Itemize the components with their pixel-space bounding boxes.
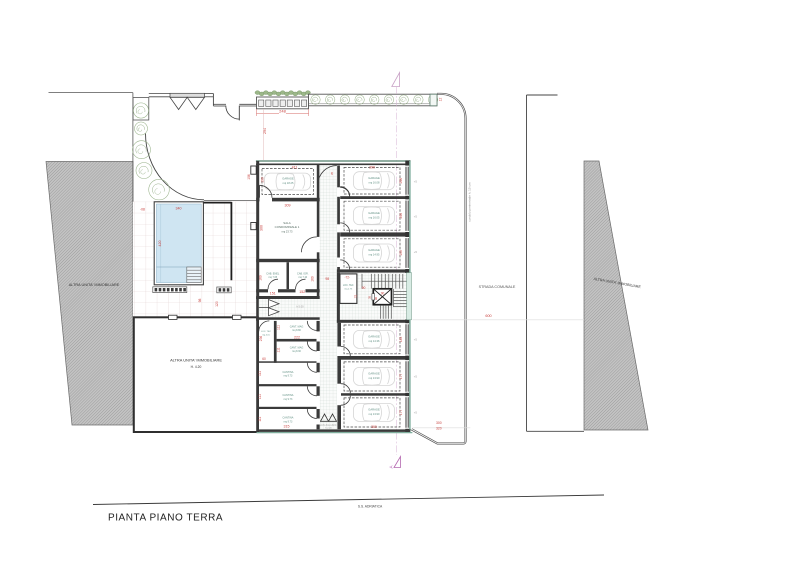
svg-text:mq 18.25: mq 18.25 xyxy=(283,181,294,185)
svg-text:151: 151 xyxy=(270,292,276,296)
svg-text:mq 14.95: mq 14.95 xyxy=(369,253,380,257)
svg-text:h 5.00: h 5.00 xyxy=(296,305,304,309)
svg-text:mq 2.73: mq 2.73 xyxy=(344,288,353,290)
svg-text:STRADA COMUNALE: STRADA COMUNALE xyxy=(479,285,516,289)
svg-text:106: 106 xyxy=(247,174,251,180)
svg-text:mq 9.73: mq 9.73 xyxy=(284,420,293,423)
svg-text:LOC. TEC: LOC. TEC xyxy=(343,285,354,287)
svg-text:GARAGE: GARAGE xyxy=(368,176,380,180)
svg-text:190: 190 xyxy=(399,250,403,256)
svg-text:GARAGE: GARAGE xyxy=(368,408,380,412)
svg-text:177: 177 xyxy=(399,410,403,416)
svg-text:-08: -08 xyxy=(140,208,145,212)
svg-text:mq 8.80: mq 8.80 xyxy=(292,329,301,332)
svg-text:mq 9.73: mq 9.73 xyxy=(284,398,293,401)
svg-text:152: 152 xyxy=(299,290,305,294)
svg-text:206: 206 xyxy=(399,213,403,219)
svg-text:206: 206 xyxy=(399,178,403,184)
svg-text:183: 183 xyxy=(399,336,403,342)
svg-text:177: 177 xyxy=(399,374,403,380)
svg-text:35: 35 xyxy=(367,296,371,300)
svg-text:mq 7.05: mq 7.05 xyxy=(268,276,277,279)
svg-text:CAB. ENEL: CAB. ENEL xyxy=(266,273,280,276)
svg-text:360: 360 xyxy=(371,425,377,429)
svg-text:GARAGE: GARAGE xyxy=(282,177,294,181)
svg-text:90: 90 xyxy=(362,286,366,290)
svg-text:98: 98 xyxy=(325,277,329,281)
svg-text:300: 300 xyxy=(260,225,264,231)
svg-text:CAB. IDR.: CAB. IDR. xyxy=(297,273,309,276)
svg-text:111: 111 xyxy=(258,416,262,421)
svg-text:ALTRA UNITA' IMMOBILIARE: ALTRA UNITA' IMMOBILIARE xyxy=(170,358,222,363)
svg-text:90: 90 xyxy=(381,292,385,296)
svg-text:mq 16.05: mq 16.05 xyxy=(369,215,380,219)
svg-text:mq 14.36: mq 14.36 xyxy=(369,339,380,343)
svg-text:111: 111 xyxy=(258,394,262,399)
svg-text:CANT. MAG: CANT. MAG xyxy=(290,326,304,329)
svg-text:111: 111 xyxy=(277,347,281,352)
svg-text:300: 300 xyxy=(436,421,442,425)
svg-text:PIANTA PIANO TERRA: PIANTA PIANO TERRA xyxy=(108,513,223,524)
svg-text:309: 309 xyxy=(285,204,291,208)
svg-text:GARAGE: GARAGE xyxy=(368,248,380,252)
svg-text:A: A xyxy=(389,465,394,469)
svg-text:111: 111 xyxy=(258,371,262,376)
svg-text:248: 248 xyxy=(279,109,286,114)
svg-text:98: 98 xyxy=(198,299,202,303)
svg-text:60: 60 xyxy=(262,357,266,361)
svg-text:169: 169 xyxy=(259,275,263,281)
svg-text:340: 340 xyxy=(176,206,182,210)
svg-text:mq 13.90: mq 13.90 xyxy=(369,412,380,416)
svg-text:h 2.20: h 2.20 xyxy=(325,427,332,429)
svg-text:CANTINA: CANTINA xyxy=(283,394,294,397)
svg-text:mq 16.08: mq 16.08 xyxy=(369,180,380,184)
svg-text:411: 411 xyxy=(292,166,298,170)
svg-text:mq 13.90: mq 13.90 xyxy=(369,376,380,380)
svg-text:S.S. ADRIATICA: S.S. ADRIATICA xyxy=(358,505,383,509)
svg-text:-72-: -72- xyxy=(344,276,350,280)
svg-text:+5: +5 xyxy=(414,250,418,254)
svg-text:mq 4.15: mq 4.15 xyxy=(262,334,270,336)
svg-text:72: 72 xyxy=(354,295,358,299)
svg-text:mq 7.10: mq 7.10 xyxy=(298,276,307,279)
svg-text:320: 320 xyxy=(436,426,442,430)
svg-text:420: 420 xyxy=(158,241,162,247)
svg-text:111: 111 xyxy=(277,325,281,330)
svg-text:porta basculante: porta basculante xyxy=(320,423,337,426)
svg-text:600: 600 xyxy=(485,314,491,318)
svg-text:GARAGE: GARAGE xyxy=(368,335,380,339)
svg-text:120: 120 xyxy=(215,301,219,307)
svg-text:mq 9.73: mq 9.73 xyxy=(284,375,293,378)
svg-text:ALTRA UNITA' IMMOBILIARE: ALTRA UNITA' IMMOBILIARE xyxy=(69,283,120,287)
svg-text:236: 236 xyxy=(259,336,263,342)
svg-text:35: 35 xyxy=(330,172,334,176)
svg-text:LOC. TEC: LOC. TEC xyxy=(261,331,271,333)
svg-text:+5: +5 xyxy=(414,411,418,415)
svg-text:mq 8.30: mq 8.30 xyxy=(292,350,301,353)
svg-text:cordolo perimetrale h. 10 cm: cordolo perimetrale h. 10 cm xyxy=(468,182,472,222)
svg-text:CANTINA: CANTINA xyxy=(283,371,294,374)
svg-text:+5: +5 xyxy=(414,338,418,342)
svg-text:90: 90 xyxy=(374,297,378,301)
svg-text:+5: +5 xyxy=(414,180,418,184)
svg-text:mq 23.73: mq 23.73 xyxy=(282,229,293,233)
svg-text:CONDOMINIALE 1: CONDOMINIALE 1 xyxy=(275,225,300,229)
svg-text:294: 294 xyxy=(263,128,267,134)
svg-text:+5: +5 xyxy=(414,375,418,379)
svg-text:+5: +5 xyxy=(414,215,418,219)
svg-text:12: 12 xyxy=(439,98,443,102)
svg-text:CANT. MAG: CANT. MAG xyxy=(290,347,304,350)
svg-text:169: 169 xyxy=(311,276,315,282)
svg-text:GARAGE: GARAGE xyxy=(368,372,380,376)
svg-text:190: 190 xyxy=(260,177,264,183)
svg-text:H. 4.20: H. 4.20 xyxy=(191,365,202,369)
svg-text:390: 390 xyxy=(369,166,375,170)
svg-text:CANTINA: CANTINA xyxy=(283,417,294,420)
svg-text:315: 315 xyxy=(284,425,290,429)
svg-text:222: 222 xyxy=(294,335,300,339)
svg-text:GARAGE: GARAGE xyxy=(368,211,380,215)
